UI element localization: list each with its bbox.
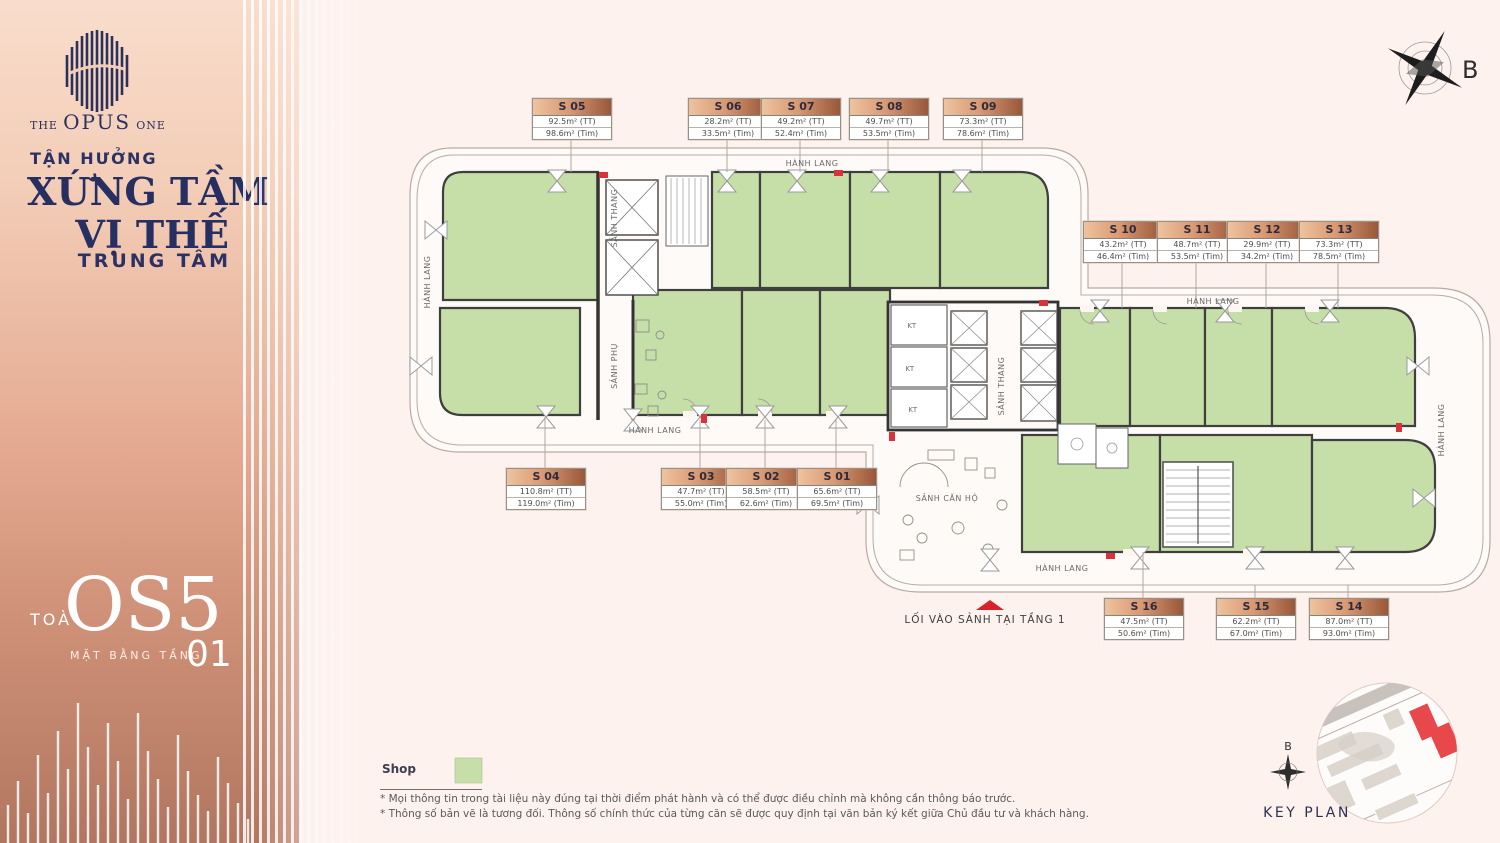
legend-swatch-group [455, 758, 482, 783]
unit-s08-shape [850, 172, 940, 288]
compass-icon: B [1368, 11, 1482, 125]
kt-label-3: KT [908, 406, 918, 414]
unit-area-tim: 53.5m² (Tim) [1158, 250, 1236, 262]
unit-id: S 05 [533, 99, 611, 116]
unit-area-tt: 29.9m² (TT) [1228, 239, 1306, 250]
unit-area-tim: 69.5m² (Tim) [798, 497, 876, 509]
unit-tag-s15: S 1562.2m² (TT)67.0m² (Tim) [1216, 598, 1296, 640]
unit-id: S 08 [850, 99, 928, 116]
unit-s05-shape [443, 172, 598, 300]
unit-area-tim: 98.6m² (Tim) [533, 127, 611, 139]
unit-area-tt: 49.7m² (TT) [850, 116, 928, 127]
unit-area-tt: 73.3m² (TT) [1300, 239, 1378, 250]
unit-s13-shape [1272, 308, 1415, 426]
unit-area-tim: 53.5m² (Tim) [850, 127, 928, 139]
key-plan-north-label: B [1284, 740, 1292, 753]
unit-area-tim: 93.0m² (Tim) [1310, 627, 1388, 639]
unit-s12-shape [1205, 308, 1272, 426]
unit-tag-s07: S 0749.2m² (TT)52.4m² (Tim) [761, 98, 841, 140]
unit-area-tt: 87.0m² (TT) [1310, 616, 1388, 627]
unit-id: S 13 [1300, 222, 1378, 239]
unit-area-tt: 48.7m² (TT) [1158, 239, 1236, 250]
unit-id: S 04 [507, 469, 585, 486]
unit-area-tim: 78.6m² (Tim) [944, 127, 1022, 139]
key-plan-compass-icon [1270, 754, 1306, 790]
corridor-label-bottom-a: HÀNH LANG [629, 424, 682, 435]
brochure-page: THE OPUS ONE TẬN HƯỞNG XỨNG TẦM VỊ THẾ T… [0, 0, 1500, 843]
legend-shop-swatch [455, 758, 482, 783]
unit-area-tt: 62.2m² (TT) [1217, 616, 1295, 627]
stair-b [1163, 462, 1233, 547]
kt-label-1: KT [907, 322, 917, 330]
corridor-label-top-a: HÀNH LANG [786, 157, 839, 168]
unit-s03-shape [633, 290, 742, 415]
unit-area-tim: 78.5m² (Tim) [1300, 250, 1378, 262]
unit-id: S 09 [944, 99, 1022, 116]
unit-id: S 02 [727, 469, 805, 486]
unit-id: S 15 [1217, 599, 1295, 616]
unit-area-tim: 46.4m² (Tim) [1084, 250, 1162, 262]
unit-tag-s09: S 0973.3m² (TT)78.6m² (Tim) [943, 98, 1023, 140]
unit-area-tt: 47.5m² (TT) [1105, 616, 1183, 627]
unit-id: S 10 [1084, 222, 1162, 239]
corridor-label-bottom-b: HÀNH LANG [1036, 562, 1089, 573]
unit-area-tim: 33.5m² (Tim) [689, 127, 767, 139]
unit-id: S 07 [762, 99, 840, 116]
unit-area-tim: 67.0m² (Tim) [1217, 627, 1295, 639]
unit-tag-s04: S 04110.8m² (TT)119.0m² (Tim) [506, 468, 586, 510]
unit-tag-s08: S 0849.7m² (TT)53.5m² (Tim) [849, 98, 929, 140]
unit-tag-s02: S 0258.5m² (TT)62.6m² (Tim) [726, 468, 806, 510]
unit-tag-s01: S 0165.6m² (TT)69.5m² (Tim) [797, 468, 877, 510]
unit-area-tim: 50.6m² (Tim) [1105, 627, 1183, 639]
unit-s04-shape [440, 308, 580, 415]
unit-tag-s16: S 1647.5m² (TT)50.6m² (Tim) [1104, 598, 1184, 640]
stair-lobby-label-a: SẢNH THANG [608, 189, 619, 248]
unit-s10-shape [1060, 308, 1130, 426]
unit-tag-s06: S 0628.2m² (TT)33.5m² (Tim) [688, 98, 768, 140]
corridor-label-left-a: HÀNH LANG [421, 256, 432, 309]
legend-shop-label: Shop [382, 762, 416, 776]
unit-s06-shape [712, 172, 760, 288]
unit-area-tt: 73.3m² (TT) [944, 116, 1022, 127]
unit-tag-s12: S 1229.9m² (TT)34.2m² (Tim) [1227, 221, 1307, 263]
unit-id: S 16 [1105, 599, 1183, 616]
disclaimer-note-2: * Thông số bản vẽ là tương đối. Thông số… [380, 808, 1380, 820]
unit-id: S 11 [1158, 222, 1236, 239]
unit-tag-s05: S 0592.5m² (TT)98.6m² (Tim) [532, 98, 612, 140]
unit-area-tt: 49.2m² (TT) [762, 116, 840, 127]
unit-area-tt: 110.8m² (TT) [507, 486, 585, 497]
unit-area-tt: 43.2m² (TT) [1084, 239, 1162, 250]
apartment-lobby-label: SẢNH CĂN HỘ [916, 492, 979, 503]
unit-id: S 12 [1228, 222, 1306, 239]
unit-s11-shape [1130, 308, 1205, 426]
unit-s01-shape [820, 290, 890, 415]
stair-lobby-label-b: SẢNH THANG [995, 357, 1006, 416]
unit-area-tim: 34.2m² (Tim) [1228, 250, 1306, 262]
unit-area-tim: 52.4m² (Tim) [762, 127, 840, 139]
unit-tag-s10: S 1043.2m² (TT)46.4m² (Tim) [1083, 221, 1163, 263]
unit-id: S 01 [798, 469, 876, 486]
unit-area-tt: 92.5m² (TT) [533, 116, 611, 127]
disclaimer-note-1: * Mọi thông tin trong tài liệu này đúng … [380, 793, 1380, 805]
unit-tag-s14: S 1487.0m² (TT)93.0m² (Tim) [1309, 598, 1389, 640]
unit-area-tt: 58.5m² (TT) [727, 486, 805, 497]
kt-label-2: KT [905, 365, 915, 373]
unit-area-tim: 119.0m² (Tim) [507, 497, 585, 509]
compass-north-label: B [1462, 56, 1478, 84]
unit-s07-shape [760, 172, 850, 288]
corridor-label-right-b: HÀNH LANG [1435, 404, 1446, 457]
unit-area-tim: 62.6m² (Tim) [727, 497, 805, 509]
corridor-label-top-b: HÀNH LANG [1187, 295, 1240, 306]
unit-area-tt: 28.2m² (TT) [689, 116, 767, 127]
unit-s02-shape [742, 290, 820, 415]
entrance-label: LỐI VÀO SẢNH TẠI TẦNG 1 [885, 614, 1085, 626]
unit-area-tt: 65.6m² (TT) [798, 486, 876, 497]
unit-id: S 14 [1310, 599, 1388, 616]
unit-id: S 06 [689, 99, 767, 116]
unit-tag-s13: S 1373.3m² (TT)78.5m² (Tim) [1299, 221, 1379, 263]
entrance-arrow-icon [976, 600, 1004, 610]
aux-lobby-label: SẢNH PHỤ [608, 343, 619, 389]
unit-tag-s11: S 1148.7m² (TT)53.5m² (Tim) [1157, 221, 1237, 263]
legend-divider [380, 789, 482, 790]
